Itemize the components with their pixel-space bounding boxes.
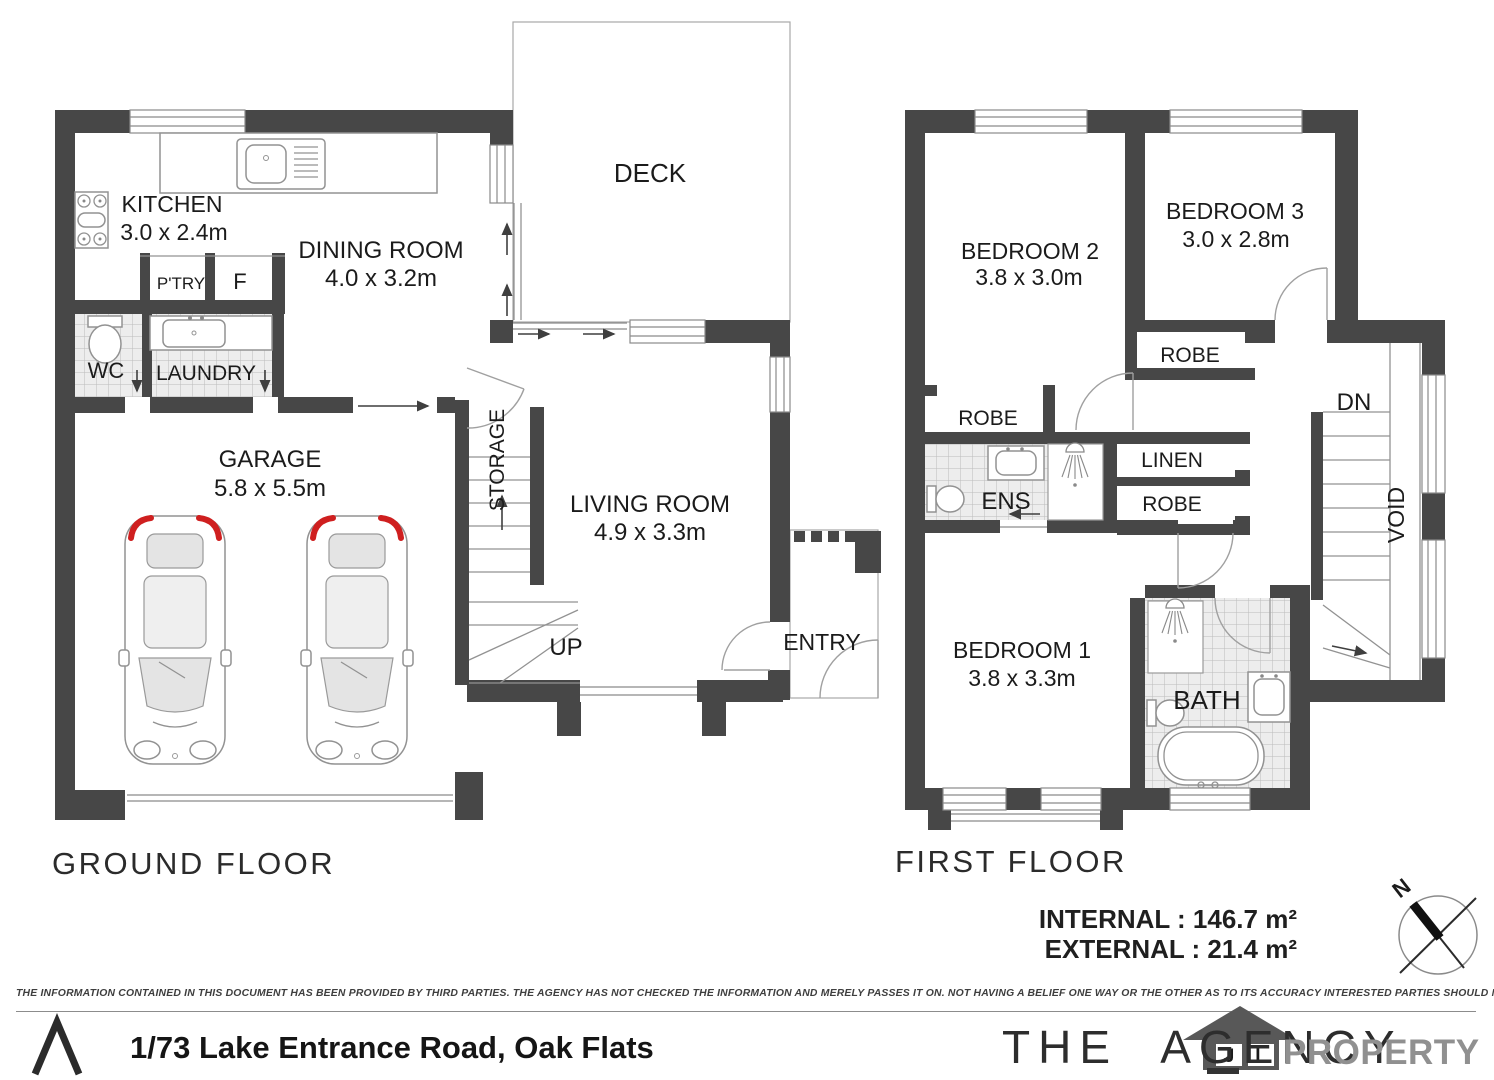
kitchen-bench [160,133,437,193]
laundry-trough [150,316,272,350]
dining-dims: 4.0 x 3.2m [325,265,437,292]
brand-property: PROPERTY [1283,1033,1480,1073]
bedroom1-label: BEDROOM 1 [953,637,1091,663]
ground-floor-title: GROUND FLOOR [52,846,335,881]
stove [75,192,108,248]
disclaimer-text: THE INFORMATION CONTAINED IN THIS DOCUME… [16,988,1482,999]
storage-label: STORAGE [486,409,509,511]
linen-label: LINEN [1141,449,1203,472]
dining-label: DINING ROOM [298,237,463,264]
first-floor-plan: BEDROOM 2 3.8 x 3.0m BEDROOM 3 3.0 x 2.8… [895,110,1445,964]
laundry-label: LAUNDRY [156,362,256,385]
living-label: LIVING ROOM [570,491,730,518]
compass-north-label: N [1387,873,1415,902]
internal-area-text: INTERNAL : 146.7 m² [1039,904,1297,934]
wc-label: WC [88,358,125,383]
bedroom3-dims: 3.0 x 2.8m [1182,226,1289,252]
kitchen-label: KITCHEN [122,191,223,217]
ground-floor-plan: DECK KITCHEN 3.0 x 2.4m DINING ROOM 4.0 … [52,22,881,881]
car-1 [119,516,231,764]
bedroom3-label: BEDROOM 3 [1166,198,1304,224]
garage-dims: 5.8 x 5.5m [214,475,326,502]
floor-plan-canvas: DECK KITCHEN 3.0 x 2.4m DINING ROOM 4.0 … [0,0,1494,1080]
robe-bed3-label: ROBE [1160,344,1220,367]
up-label: UP [549,634,582,661]
ens-label: ENS [981,488,1030,515]
robe-bed2-label: ROBE [958,407,1018,430]
car-2 [301,516,413,764]
deck-label: DECK [614,158,687,188]
property-address: 1/73 Lake Entrance Road, Oak Flats [130,1030,654,1066]
bath-label: BATH [1173,685,1240,715]
compass: N [1387,873,1477,974]
living-dims: 4.9 x 3.3m [594,519,706,546]
agency-caret-logo-icon [24,1012,94,1080]
external-area-text: EXTERNAL : 21.4 m² [1045,934,1298,964]
bedroom2-dims: 3.8 x 3.0m [975,264,1082,290]
fridge-label: F [233,269,246,294]
front-door [722,622,770,670]
staircase-down [1323,412,1390,668]
garage-door [127,795,453,801]
floor-plan-page: DECK KITCHEN 3.0 x 2.4m DINING ROOM 4.0 … [0,0,1494,1080]
bedroom1-dims: 3.8 x 3.3m [968,665,1075,691]
deck-sliding-doors [507,203,627,334]
kitchen-dims: 3.0 x 2.4m [120,219,227,245]
robe-hall-label: ROBE [1142,493,1202,516]
dn-label: DN [1337,389,1372,416]
wc-toilet [88,316,122,363]
bedroom2-label: BEDROOM 2 [961,238,1099,264]
entry-label: ENTRY [783,629,861,655]
void-label: VOID [1383,487,1409,543]
first-floor-title: FIRST FLOOR [895,844,1127,879]
garage-label: GARAGE [219,446,322,473]
pantry-label: P'TRY [157,274,205,293]
